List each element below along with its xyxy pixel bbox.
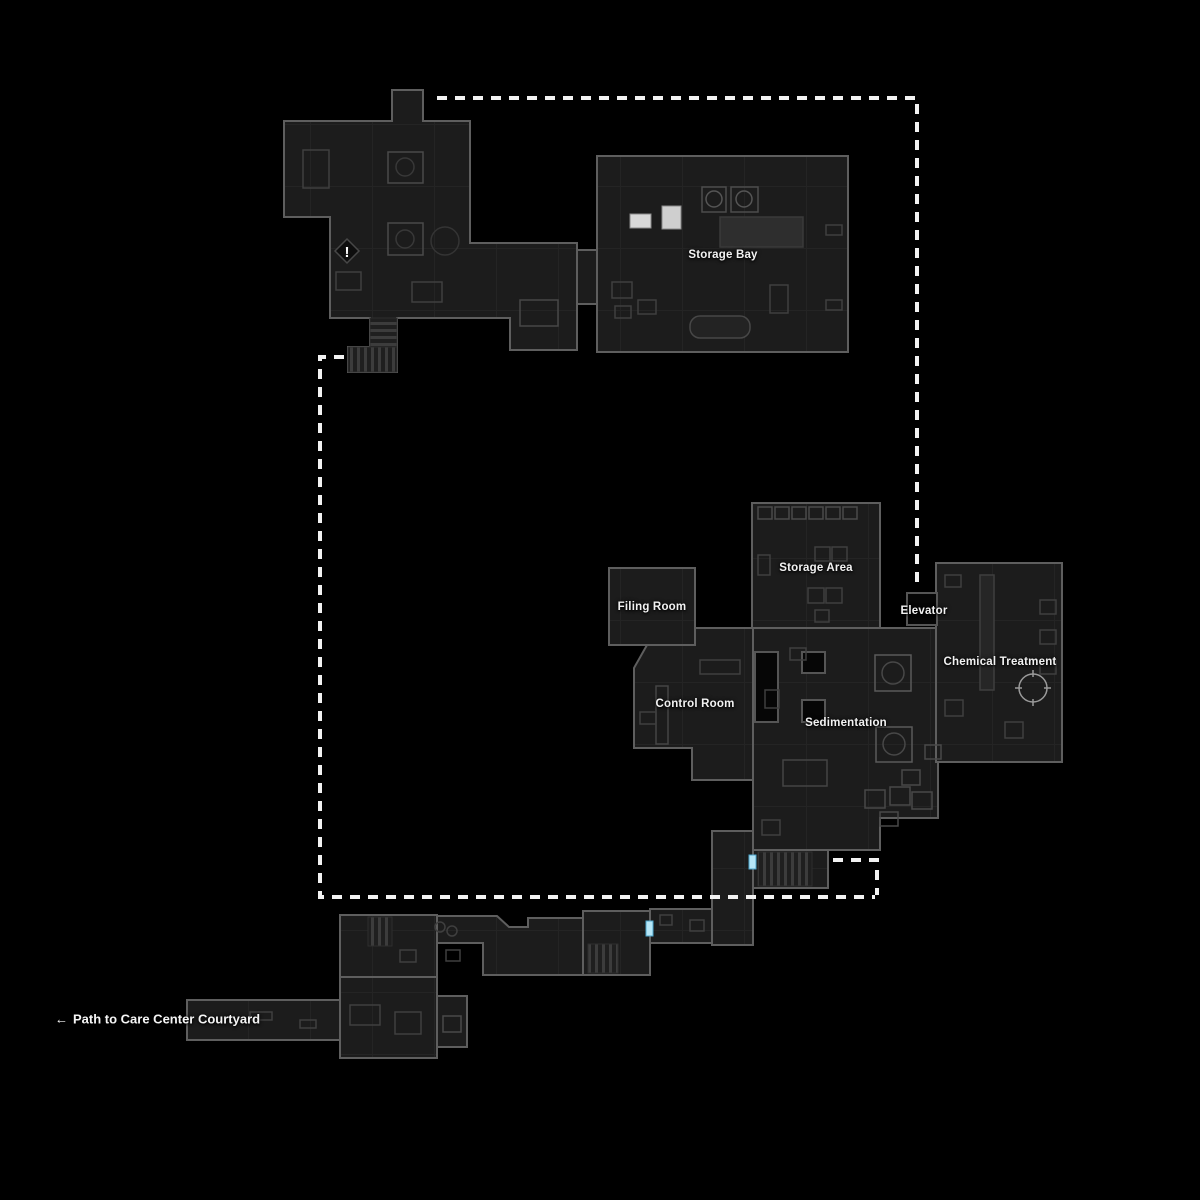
exit-path-text: Path to Care Center Courtyard <box>73 1012 260 1027</box>
label-storage-area: Storage Area <box>779 562 853 574</box>
room-south-corridor-west <box>430 916 583 975</box>
room-small-annex <box>437 996 467 1047</box>
label-control-room: Control Room <box>655 698 734 710</box>
label-storage-bay: Storage Bay <box>688 249 757 261</box>
room-southwest-lower-block <box>340 977 437 1058</box>
cutout-hole <box>755 652 778 722</box>
label-filing-room: Filing Room <box>618 601 687 613</box>
stairs-sedimentation-exit <box>758 852 812 886</box>
route-dashed-hook <box>833 860 877 895</box>
door-marker <box>749 855 756 869</box>
stairs-southwest-block <box>368 917 392 946</box>
label-elevator: Elevator <box>901 605 948 617</box>
label-sedimentation: Sedimentation <box>805 717 887 729</box>
svg-text:!: ! <box>345 244 350 261</box>
facility-map: ! Storage Bay Filing Room Storage Area E… <box>0 0 1200 1200</box>
exit-arrow-icon: ← <box>55 1012 68 1027</box>
stairs-south-room <box>588 944 618 973</box>
label-chemical-treatment: Chemical Treatment <box>944 656 1057 668</box>
stairs-nw-turn <box>348 347 397 372</box>
room-entry-complex <box>284 90 577 372</box>
bright-machine <box>662 206 681 229</box>
bright-machine <box>630 214 651 228</box>
exit-path-label: ←Path to Care Center Courtyard <box>55 1012 260 1027</box>
stairs-nw-shaft <box>370 318 397 347</box>
door-marker <box>646 921 653 936</box>
room-vertical-corridor <box>712 831 753 945</box>
